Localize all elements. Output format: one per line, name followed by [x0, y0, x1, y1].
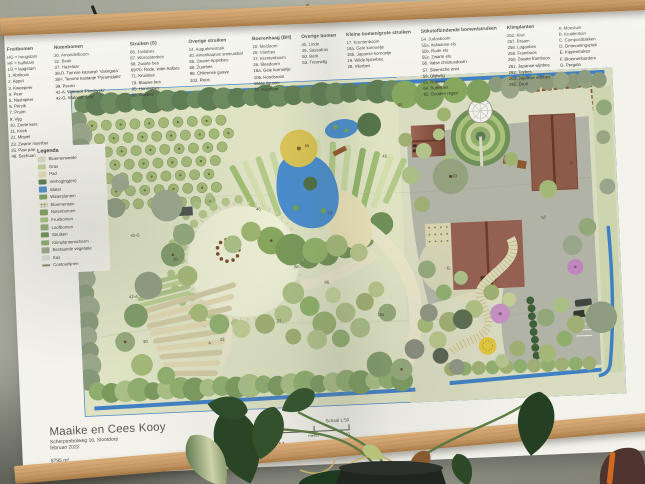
plant-list-item: 96. Gojibes	[132, 90, 181, 98]
legend-label: Water	[50, 186, 62, 191]
plant-list-column: Kleine bomen/grote struiken17. Krentenbo…	[346, 30, 416, 145]
scale-tick-meter: meter	[308, 433, 319, 438]
legend-swatch	[37, 156, 45, 162]
plant-list-column: Overige struiken14. Augurkenstruik40. Am…	[188, 38, 247, 152]
caption-block: Maaike en Cees Kooy Scherpenbolweg 16, S…	[49, 421, 166, 451]
svg-text:18a: 18a	[377, 312, 385, 317]
svg-text:42-G: 42-G	[130, 232, 139, 237]
plant-list-column: Stikstofbindende bomen/struiken54. Judas…	[421, 27, 502, 142]
legend-item: Contourlijnen	[42, 260, 108, 268]
legend-label: Fruitbomen	[51, 216, 73, 222]
plant-list-title: Boerenhaag (BH)	[252, 35, 291, 42]
plant-list-column: FruitbomenHG = hoogstamHF = halfstamLG =…	[7, 46, 49, 160]
legend-label: Contourlijnen	[53, 261, 79, 267]
plant-list-column: Boerenhaag (BH)20. Meidoorn28. Vlierbes1…	[252, 35, 296, 149]
orange-stick	[607, 452, 616, 484]
legend-label: Gras	[49, 164, 59, 169]
plant-list-title: Fruitbomen	[7, 46, 44, 53]
legend-label: Loofbomen	[51, 224, 73, 230]
legend-label: Notenbomen	[51, 208, 76, 214]
plant-list-column: Notenbomen30. Amandelboom32. Beuk37. Haz…	[54, 43, 125, 158]
legend-swatch	[42, 264, 50, 266]
scale-tick-0: 0	[280, 434, 283, 439]
legend-swatch	[39, 194, 47, 200]
plant-list-column: Struiken (S)66. Jostabes67. Worcesterbes…	[130, 40, 184, 154]
plant-list-item: 37. Hazelaar	[254, 85, 293, 93]
plant-list-column: A. MoestuinB. KruidentuinC. Compostbakke…	[558, 22, 601, 136]
svg-text:42-A: 42-A	[129, 294, 138, 299]
legend-swatch	[39, 187, 47, 193]
photo-of-garden-plan-poster: FruitbomenHG = hoogstamHF = halfstamLG =…	[0, 0, 645, 484]
plant-list-item: 265. Druif	[509, 80, 551, 88]
plant-list-item: 53. Treurwilg	[302, 59, 337, 67]
plant-list-item: G. Pergola	[560, 61, 598, 69]
legend-swatch	[40, 209, 48, 215]
legend-swatch	[41, 247, 49, 253]
legend-swatch	[38, 179, 46, 185]
legend-label: Klimplantenscherm	[52, 238, 89, 245]
legend-label: Waterplanten	[50, 193, 76, 199]
plant-list-column: Klimplanten252. Kiwi257. Braam258. Logan…	[507, 24, 554, 138]
garden-design-poster: FruitbomenHG = hoogstamHF = halfstamLG =…	[4, 4, 645, 478]
scale-indicator: Schaal 1:50 0 meter 10	[279, 417, 350, 439]
legend-swatch	[38, 164, 46, 170]
legend-label: Struiken	[52, 232, 68, 238]
legend-label: Verhoging(en)	[49, 178, 76, 184]
plant-list-column: Overige bomen45. Linde46. Sassafras50. B…	[301, 34, 341, 148]
svg-text:G: G	[447, 265, 450, 270]
legend-label: Bloemenweide	[48, 155, 76, 161]
legend-swatch	[42, 255, 50, 261]
legend-swatch	[40, 217, 48, 223]
svg-text:A: A	[208, 340, 211, 345]
legend-label: Kas	[53, 255, 61, 260]
legend-label: Pad	[49, 171, 57, 176]
legend-swatch	[41, 240, 49, 246]
legend-swatch	[38, 171, 46, 177]
maroon-leaf	[600, 448, 645, 484]
planter-box	[517, 160, 527, 169]
legend-rows: BloemenweideGrasPadVerhoging(en)WaterWat…	[37, 154, 108, 268]
legend-label: Bestaande vegetatie	[52, 246, 91, 253]
plant-pot	[336, 462, 446, 484]
legend-swatch	[41, 232, 49, 238]
legend-label: Bloementuin	[50, 201, 74, 207]
legend-swatch	[39, 202, 47, 208]
scale-tick-10: 10	[345, 431, 350, 436]
legend-panel: Legenda BloemenweideGrasPadVerhoging(en)…	[35, 144, 110, 274]
legend-swatch	[40, 225, 48, 231]
plant-list-title: Overige bomen	[301, 34, 336, 41]
